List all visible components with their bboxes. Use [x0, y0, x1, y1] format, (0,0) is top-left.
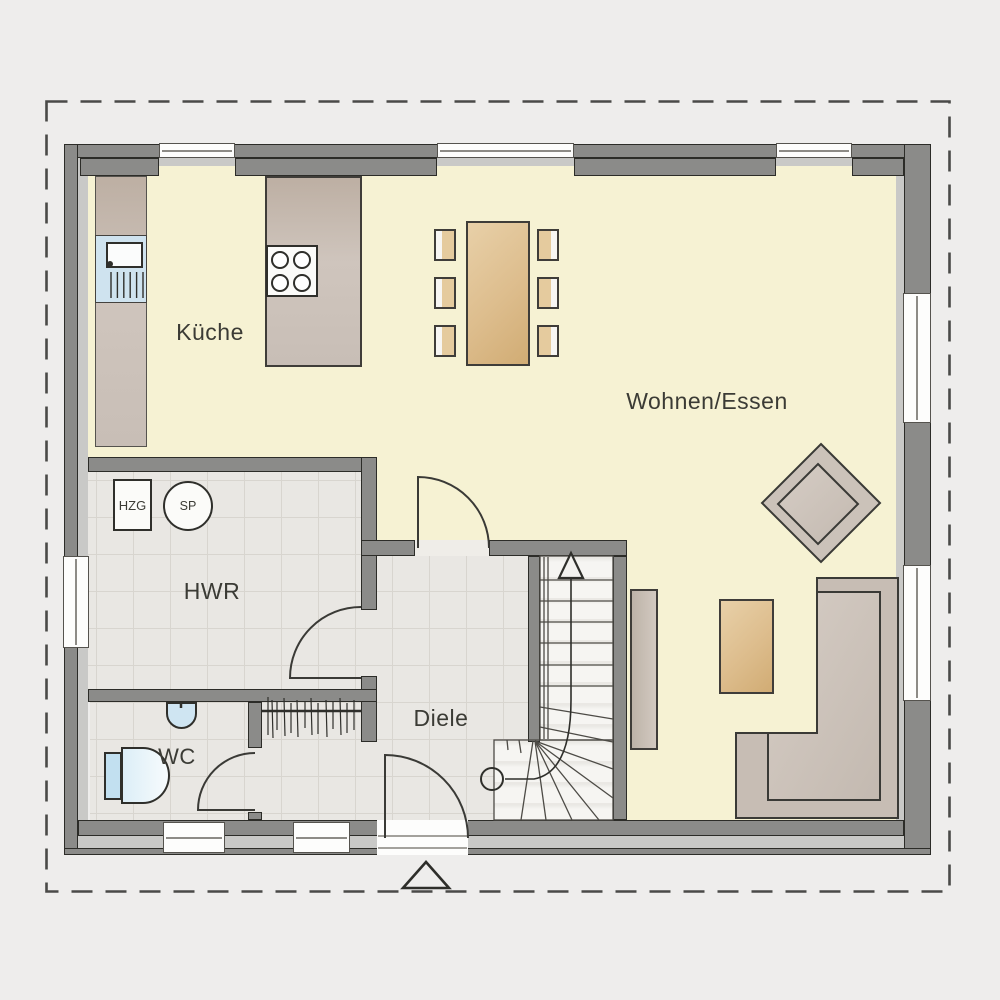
sideboard: [630, 589, 658, 750]
wall-diele-north-west: [361, 540, 415, 556]
window-mullion: [296, 837, 347, 839]
window-mullion: [916, 568, 918, 698]
wall-hwr-diele-upper: [361, 457, 377, 610]
window-mullion: [779, 150, 849, 152]
toilet-tank: [104, 752, 122, 800]
dining-chair: [537, 277, 559, 309]
window-mullion: [75, 559, 77, 645]
boiler-sp: SP: [163, 481, 213, 531]
threshold-line: [378, 847, 467, 849]
chair-back: [436, 279, 442, 307]
window: [293, 822, 350, 853]
wall-pier: [235, 158, 437, 176]
window: [776, 143, 852, 158]
threshold-line: [378, 835, 467, 837]
window-mullion: [166, 837, 222, 839]
sp-label: SP: [180, 499, 197, 513]
wall-pier: [80, 158, 159, 176]
wall-right: [904, 144, 931, 855]
dining-table: [466, 221, 530, 366]
room-label-kueche: Küche: [150, 321, 270, 344]
chair-back: [436, 231, 442, 259]
window: [163, 822, 225, 853]
doorway-wohnen-threshold: [415, 540, 489, 556]
doorway-hwr-floor: [361, 610, 377, 676]
wall-band-right: [896, 158, 904, 848]
room-label-wohnen-essen: Wohnen/Essen: [597, 390, 817, 413]
coffee-table: [719, 599, 774, 694]
stairs-winder: [494, 740, 613, 820]
wall-hwr-wc: [88, 689, 377, 702]
wall-wc-east-lower: [248, 812, 262, 820]
room-label-wc: WC: [137, 746, 217, 768]
kitchen-counter: [95, 176, 147, 447]
wall-left: [64, 144, 78, 855]
wall-band-top: [78, 158, 904, 166]
cooktop: [266, 245, 318, 297]
room-label-diele: Diele: [381, 707, 501, 730]
dining-chair: [434, 325, 456, 357]
heater-hzg: HZG: [113, 479, 152, 531]
window: [159, 143, 235, 158]
wall-pier: [574, 158, 776, 176]
wall-kueche-hwr: [88, 457, 377, 472]
chair-back: [436, 327, 442, 355]
wall-stairs-east: [613, 556, 627, 820]
dining-chair: [434, 277, 456, 309]
floor-plan-canvas: HZG SP: [0, 0, 1000, 1000]
dining-chair: [537, 325, 559, 357]
wall-band-left: [78, 158, 88, 848]
wall-stairs-west: [528, 556, 540, 742]
window-mullion: [916, 296, 918, 420]
floor-diele-strip: [361, 742, 377, 820]
wall-wc-east-upper: [248, 702, 262, 748]
kitchen-sink-basin: [106, 242, 143, 268]
stairs-flight: [540, 556, 613, 740]
hzg-label: HZG: [119, 498, 146, 513]
entrance-marker-icon: [403, 862, 449, 888]
floor-wohnen-mid: [377, 457, 899, 540]
wall-pier: [852, 158, 904, 176]
chair-back: [551, 231, 557, 259]
wall-diele-north-east: [489, 540, 627, 556]
room-label-hwr: HWR: [152, 580, 272, 603]
window: [437, 143, 574, 158]
window-mullion: [162, 150, 232, 152]
window: [903, 565, 931, 701]
window-mullion: [440, 150, 571, 152]
entrance-opening: [377, 820, 468, 855]
window: [903, 293, 931, 423]
floor-niche: [262, 702, 361, 820]
chair-back: [551, 327, 557, 355]
chair-back: [551, 279, 557, 307]
dining-chair: [537, 229, 559, 261]
doorway-wc-floor: [248, 748, 262, 812]
dining-chair: [434, 229, 456, 261]
window: [63, 556, 89, 648]
wall-hwr-diele-lower: [361, 676, 377, 742]
